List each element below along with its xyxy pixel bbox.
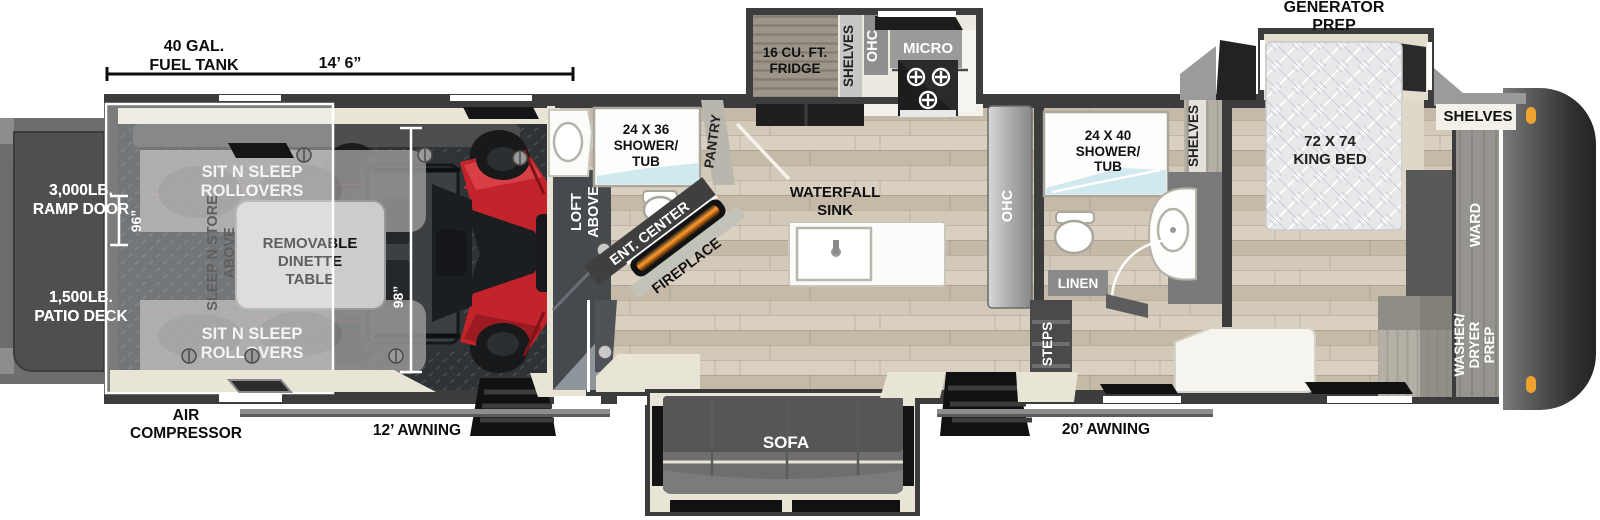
svg-text:98”: 98” (390, 286, 406, 309)
svg-text:20’ AWNING: 20’ AWNING (1062, 421, 1150, 438)
svg-text:WASHER/: WASHER/ (1452, 313, 1467, 376)
svg-text:12’ AWNING: 12’ AWNING (373, 422, 461, 439)
svg-text:PREP: PREP (1482, 327, 1497, 364)
svg-text:OHC: OHC (865, 29, 881, 62)
svg-text:AIR: AIR (173, 407, 200, 424)
svg-text:SINK: SINK (817, 202, 853, 219)
svg-text:LOFT: LOFT (569, 193, 585, 231)
svg-text:3,000LB.: 3,000LB. (49, 182, 113, 199)
svg-text:DRYER: DRYER (1467, 321, 1482, 368)
svg-text:TUB: TUB (632, 154, 660, 169)
svg-text:OHC: OHC (1000, 189, 1016, 222)
svg-text:SHOWER/: SHOWER/ (614, 138, 679, 153)
svg-text:TUB: TUB (1094, 159, 1122, 174)
svg-text:SOFA: SOFA (763, 433, 809, 452)
svg-text:72 X 74: 72 X 74 (1304, 133, 1356, 150)
svg-text:ABOVE: ABOVE (586, 186, 602, 238)
svg-text:WATERFALL: WATERFALL (790, 184, 881, 201)
svg-text:PREP: PREP (1312, 17, 1356, 34)
svg-text:24 X 40: 24 X 40 (1085, 128, 1132, 143)
svg-text:40 GAL.: 40 GAL. (164, 38, 224, 55)
svg-text:RAMP DOOR: RAMP DOOR (33, 201, 129, 218)
svg-text:SHELVES: SHELVES (1444, 108, 1513, 125)
svg-text:SHELVES: SHELVES (841, 25, 856, 87)
svg-text:FUEL TANK: FUEL TANK (149, 57, 239, 74)
svg-text:16 CU. FT.: 16 CU. FT. (763, 45, 828, 60)
svg-text:PATIO DECK: PATIO DECK (34, 308, 128, 325)
svg-text:WARD: WARD (1468, 203, 1484, 247)
svg-text:COMPRESSOR: COMPRESSOR (130, 425, 242, 442)
svg-text:14’ 6”: 14’ 6” (319, 55, 362, 72)
svg-text:SHELVES: SHELVES (1186, 105, 1201, 167)
svg-text:LINEN: LINEN (1058, 276, 1099, 291)
svg-text:FRIDGE: FRIDGE (769, 61, 820, 76)
svg-text:1,500LB.: 1,500LB. (49, 289, 113, 306)
svg-text:KING BED: KING BED (1293, 151, 1367, 168)
svg-text:GENERATOR: GENERATOR (1284, 0, 1385, 16)
svg-text:SHOWER/: SHOWER/ (1076, 144, 1141, 159)
svg-text:MICRO: MICRO (903, 40, 953, 57)
svg-text:24 X 36: 24 X 36 (623, 122, 670, 137)
svg-text:96”: 96” (128, 210, 144, 233)
svg-text:STEPS: STEPS (1040, 322, 1055, 366)
